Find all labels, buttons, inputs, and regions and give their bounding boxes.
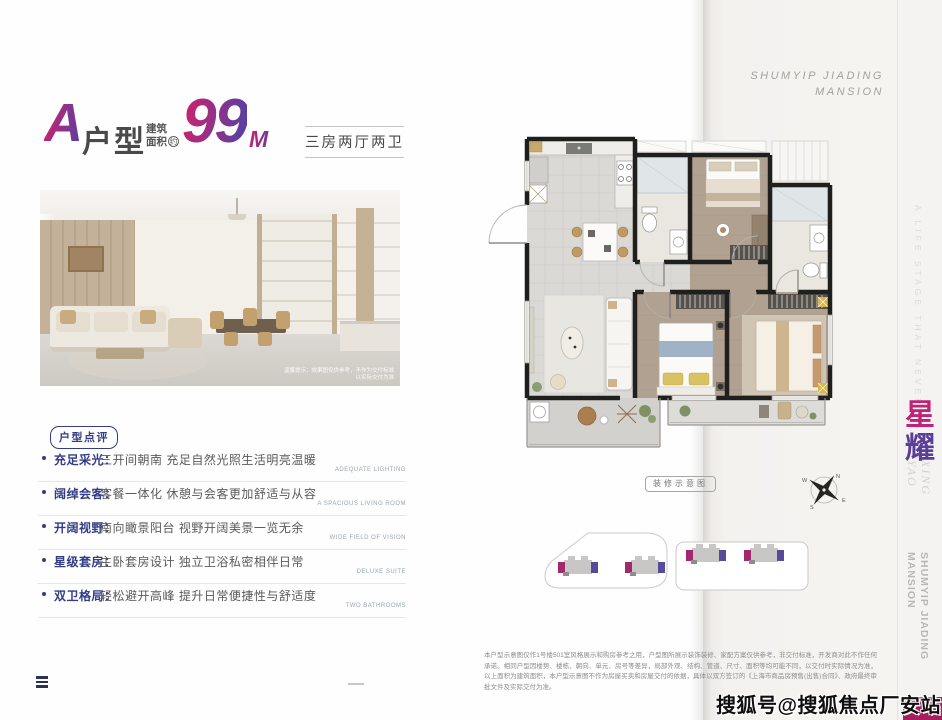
- floor-plan-tag: 装修示意图: [645, 476, 716, 492]
- review-badge: 户型点评: [50, 426, 118, 449]
- review-item: 开阔视野： 南向瞰景阳台 视野开阔美景一览无余 WIDE FIELD OF VI…: [38, 516, 408, 550]
- photo-dining-chair: [276, 311, 290, 329]
- side-brand-bottom: SHUMYIP JIADING MANSION: [904, 552, 930, 660]
- site-map: [538, 524, 814, 596]
- photo-sofa-cushion: [94, 312, 128, 332]
- footer-divider-mark: [348, 683, 364, 685]
- photo-pendant-lamp: [228, 214, 246, 220]
- bullet-dot-icon: [42, 592, 46, 596]
- area-approx-circle: 约: [168, 136, 179, 147]
- side-tagline: A LIFE STAGE THAT NEVER FADES: [913, 205, 923, 420]
- review-text: 轻松避开高峰 提升日常便捷性与舒适度: [100, 587, 316, 604]
- area-unit-sup: 2: [268, 127, 274, 139]
- bullet-dot-icon: [42, 524, 46, 528]
- bullet-dot-icon: [42, 490, 46, 494]
- brochure-page: A 户型 建筑 面积约 99 M2 三房两厅两卫 SHUMYIP JIADING…: [0, 0, 942, 720]
- review-caption-en: DELUXE SUITE: [357, 569, 406, 575]
- footer-logo: [36, 676, 48, 690]
- photo-island-counter: [340, 321, 400, 351]
- interior-photo: 温馨提示：效果图仅供参考，不作为交付标准 以实际交付为准: [40, 190, 400, 386]
- review-text: 南向瞰景阳台 视野开阔美景一览无余: [100, 519, 304, 536]
- photo-coffee-table: [96, 348, 144, 359]
- photo-pendant-stem: [236, 198, 238, 214]
- side-brand-pinyin: XING YAO: [905, 460, 933, 496]
- review-item: 星级套房： 主卧套房设计 独立卫浴私密相伴日常 DELUXE SUITE: [38, 550, 408, 584]
- compass-icon: N E S W: [800, 468, 848, 512]
- review-caption-en: WIDE FIELD OF VISION: [330, 535, 406, 541]
- svg-text:W: W: [802, 478, 808, 484]
- review-item: 双卫格局： 轻松避开高峰 提升日常便捷性与舒适度 TWO BATHROOMS: [38, 584, 408, 618]
- area-label-line1: 建筑: [146, 123, 167, 135]
- photo-dining-chair: [258, 332, 272, 346]
- brand-name-top: SHUMYIP JIADING MANSION: [750, 68, 884, 100]
- photo-artwork: [68, 246, 104, 272]
- photo-caption: 温馨提示：效果图仅供参考，不作为交付标准 以实际交付为准: [284, 368, 394, 382]
- review-text: 客餐一体化 休憩与会客更加舒适与从容: [100, 485, 316, 502]
- svg-text:S: S: [810, 505, 814, 511]
- review-text: 主卧套房设计 独立卫浴私密相伴日常: [100, 553, 304, 570]
- bullet-dot-icon: [42, 558, 46, 562]
- area-label: 建筑 面积约: [146, 123, 179, 149]
- review-list: 充足采光： 三开间朝南 充足自然光照生活明亮温暖 ADEQUATE LIGHTI…: [38, 448, 408, 618]
- review-caption-en: A SPACIOUS LIVING ROOM: [317, 501, 406, 507]
- unit-letter: A: [44, 96, 83, 150]
- floor-plan-image: [480, 135, 860, 465]
- divider: [38, 617, 406, 618]
- area-unit: M2: [249, 126, 274, 153]
- photo-dining-chair: [210, 311, 224, 329]
- layout-description: 三房两厅两卫: [305, 126, 404, 158]
- review-item: 阔绰会客： 客餐一体化 休憩与会客更加舒适与从容 A SPACIOUS LIVI…: [38, 482, 408, 516]
- photo-dining-chair: [243, 308, 257, 326]
- review-caption-en: TWO BATHROOMS: [346, 603, 406, 609]
- area-label-line2: 面积: [146, 136, 167, 148]
- photo-dining-chair: [224, 332, 238, 346]
- area-value: 99: [182, 91, 247, 153]
- bullet-dot-icon: [42, 456, 46, 460]
- photo-armchair: [168, 318, 202, 348]
- photo-pillow: [60, 310, 76, 324]
- review-caption-en: ADEQUATE LIGHTING: [335, 467, 406, 473]
- disclaimer-text: 本户型示意图仅作1号楼501室风格展示和购房参考之用，户型图所展示装饰装修、家配…: [484, 651, 877, 693]
- svg-text:N: N: [836, 474, 840, 480]
- unit-word: 户型: [82, 117, 146, 161]
- photo-pillow: [140, 310, 156, 324]
- review-item: 充足采光： 三开间朝南 充足自然光照生活明亮温暖 ADEQUATE LIGHTI…: [38, 448, 408, 482]
- review-text: 三开间朝南 充足自然光照生活明亮温暖: [100, 451, 316, 468]
- svg-text:E: E: [842, 498, 846, 504]
- watermark: 搜狐号@搜狐焦点厂安站: [716, 689, 941, 718]
